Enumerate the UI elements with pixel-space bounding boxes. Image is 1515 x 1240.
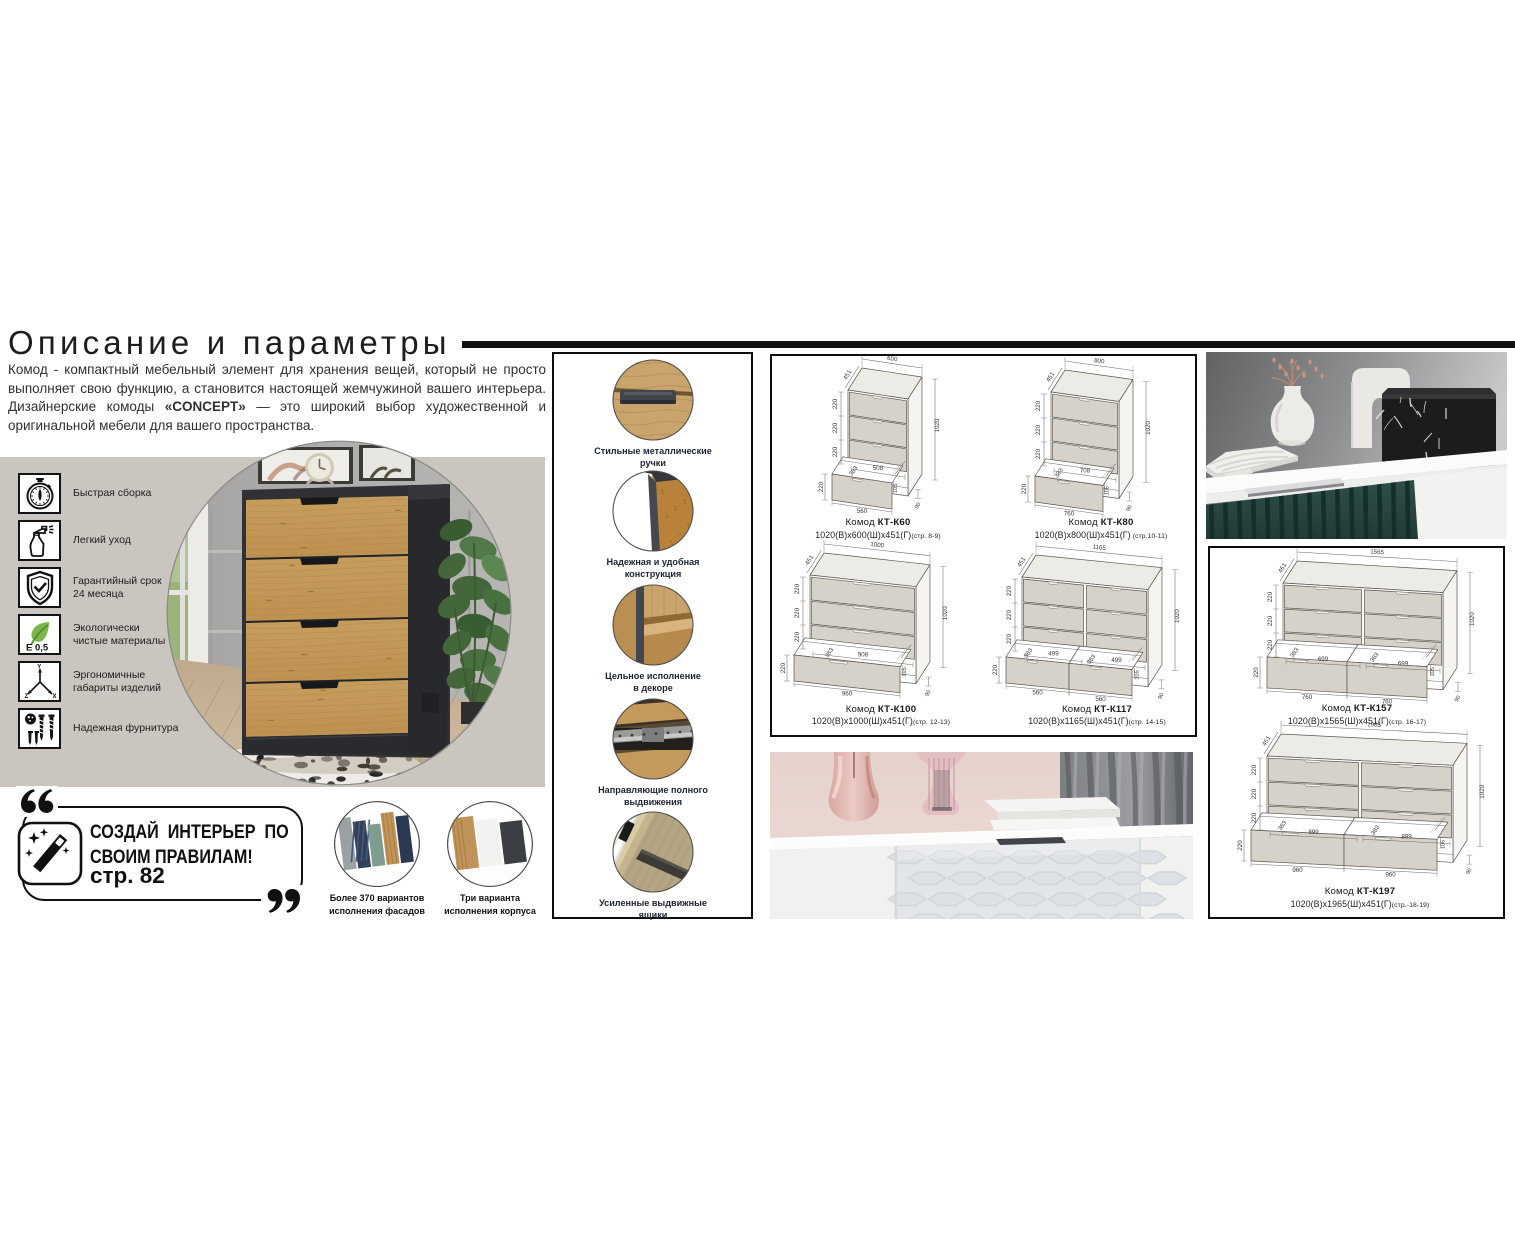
svg-text:220: 220: [992, 664, 999, 675]
svg-text:220: 220: [1251, 788, 1258, 799]
svg-text:699: 699: [1318, 656, 1329, 663]
svg-text:90: 90: [924, 689, 932, 697]
svg-text:E 0,5: E 0,5: [26, 642, 49, 653]
svg-text:899: 899: [1401, 834, 1412, 841]
svg-text:220: 220: [832, 398, 839, 409]
svg-text:508: 508: [873, 465, 884, 472]
svg-text:220: 220: [794, 583, 801, 594]
svg-text:499: 499: [1048, 651, 1059, 658]
svg-text:105: 105: [1430, 667, 1436, 676]
svg-text:451: 451: [1016, 555, 1028, 568]
svg-text:760: 760: [1302, 694, 1313, 701]
svg-text:220: 220: [1251, 764, 1258, 775]
svg-text:220: 220: [1021, 483, 1028, 494]
svg-text:451: 451: [842, 368, 854, 381]
svg-text:220: 220: [832, 422, 839, 433]
svg-text:1165: 1165: [1092, 544, 1106, 552]
svg-text:560: 560: [1095, 696, 1106, 703]
svg-text:105: 105: [893, 484, 899, 493]
svg-text:220: 220: [1267, 615, 1274, 626]
svg-text:105: 105: [1441, 840, 1447, 849]
svg-text:600: 600: [887, 355, 899, 364]
svg-text:1020: 1020: [942, 606, 949, 620]
svg-text:220: 220: [780, 662, 787, 673]
svg-text:1020: 1020: [1479, 784, 1486, 798]
svg-text:90: 90: [914, 502, 922, 510]
svg-text:90: 90: [1125, 504, 1133, 512]
svg-text:451: 451: [1045, 370, 1057, 383]
svg-text:451: 451: [1261, 734, 1273, 747]
svg-text:220: 220: [1267, 591, 1274, 602]
svg-text:960: 960: [842, 690, 853, 697]
svg-text:708: 708: [1080, 467, 1091, 474]
svg-text:1020: 1020: [1469, 612, 1476, 626]
svg-text:220: 220: [794, 631, 801, 642]
svg-text:220: 220: [1237, 840, 1244, 851]
svg-text:Y: Y: [37, 664, 41, 670]
svg-text:1000: 1000: [870, 541, 885, 550]
svg-text:Z: Z: [24, 694, 28, 700]
svg-text:220: 220: [1035, 448, 1042, 459]
svg-text:220: 220: [794, 607, 801, 618]
svg-text:1565: 1565: [1370, 548, 1385, 556]
svg-text:220: 220: [1035, 424, 1042, 435]
svg-text:X: X: [52, 694, 56, 700]
svg-text:451: 451: [1277, 561, 1289, 574]
svg-text:1020: 1020: [934, 418, 941, 432]
svg-text:960: 960: [1292, 867, 1303, 874]
svg-text:1020: 1020: [1145, 421, 1152, 435]
svg-text:699: 699: [1398, 661, 1409, 668]
svg-text:451: 451: [804, 553, 816, 566]
svg-text:220: 220: [1006, 633, 1013, 644]
svg-text:899: 899: [1308, 829, 1319, 836]
svg-text:105: 105: [1104, 486, 1110, 495]
svg-text:90: 90: [1454, 695, 1462, 703]
svg-text:560: 560: [1032, 690, 1043, 697]
svg-text:90: 90: [1465, 867, 1473, 875]
svg-text:960: 960: [1385, 872, 1396, 879]
svg-text:220: 220: [832, 446, 839, 457]
svg-text:220: 220: [1035, 400, 1042, 411]
svg-text:560: 560: [857, 508, 868, 515]
svg-text:105: 105: [902, 667, 908, 676]
svg-text:90: 90: [1157, 692, 1165, 700]
svg-text:220: 220: [1253, 667, 1260, 678]
svg-text:908: 908: [858, 651, 869, 658]
svg-text:105: 105: [1135, 670, 1141, 679]
svg-text:220: 220: [1251, 812, 1258, 823]
svg-text:1020: 1020: [1174, 609, 1181, 623]
svg-text:220: 220: [1006, 609, 1013, 620]
svg-text:499: 499: [1111, 657, 1122, 664]
svg-text:800: 800: [1094, 357, 1106, 365]
svg-text:220: 220: [1267, 639, 1274, 650]
svg-text:220: 220: [1006, 585, 1013, 596]
svg-text:220: 220: [818, 481, 825, 492]
